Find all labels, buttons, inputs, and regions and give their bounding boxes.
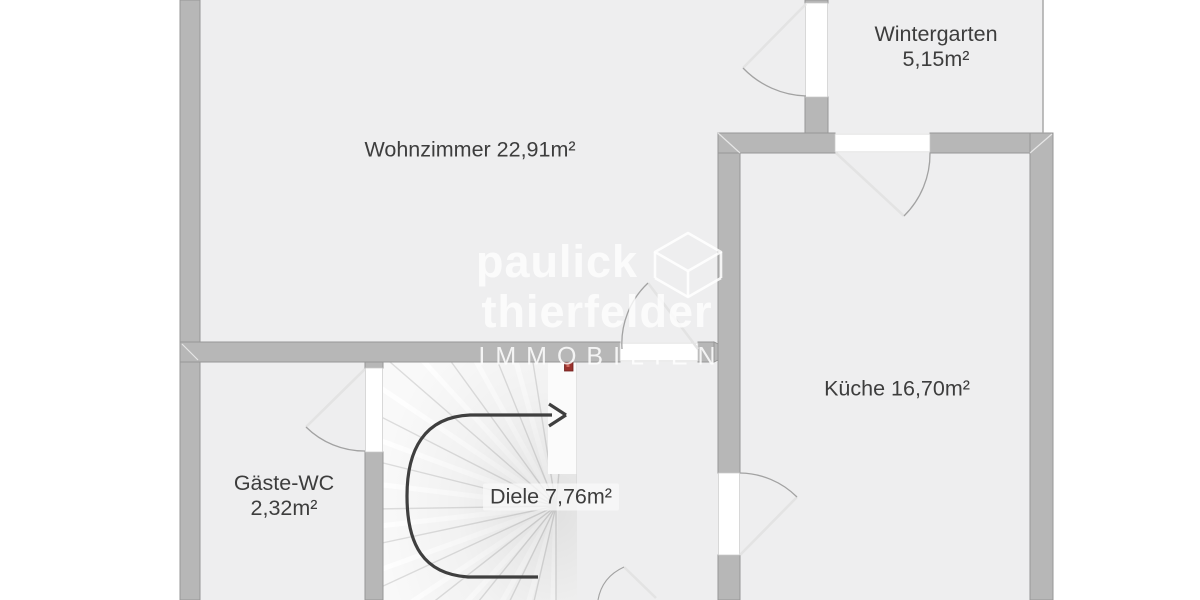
wall-wc-right-lower (365, 452, 383, 600)
room-label-kueche: Küche 16,70m² (824, 377, 970, 402)
floor-plan: paulick thierfelder IMMOBILIEN Wohnzimme… (0, 0, 1200, 600)
wall-kueche-left-upper (718, 153, 740, 473)
room-area: 2,32m² (234, 496, 334, 521)
room-name: Wintergarten (874, 22, 997, 47)
room-label-wintergarten: Wintergarten 5,15m² (874, 22, 997, 72)
door-opening-wintergarten-kueche (835, 134, 930, 152)
room-area: 5,15m² (874, 47, 997, 72)
watermark-word-2: thierfelder (481, 286, 712, 338)
wall-kueche-top-left (718, 133, 835, 153)
wall-wc-right-stub (365, 362, 383, 368)
wall-kueche-left-lower (718, 555, 740, 600)
room-name: Gäste-WC (234, 471, 334, 496)
wall-kueche-right (1030, 133, 1053, 600)
watermark-word-1: paulick (476, 236, 638, 288)
wall-left-exterior (180, 0, 200, 600)
wall-wintergarten-lower (805, 97, 828, 133)
watermark-word-3: IMMOBILIEN (478, 343, 725, 372)
door-opening-kueche (719, 473, 740, 555)
room-label-diele: Diele 7,76m² (483, 484, 619, 511)
door-opening-gaeste-wc (366, 368, 383, 452)
room-label-gaeste-wc: Gäste-WC 2,32m² (234, 471, 334, 521)
room-label-wohnzimmer: Wohnzimmer 22,91m² (364, 138, 575, 163)
door-opening-wintergarten-wohnzimmer (806, 3, 828, 97)
wall-wintergarten-top-stub (805, 0, 828, 3)
